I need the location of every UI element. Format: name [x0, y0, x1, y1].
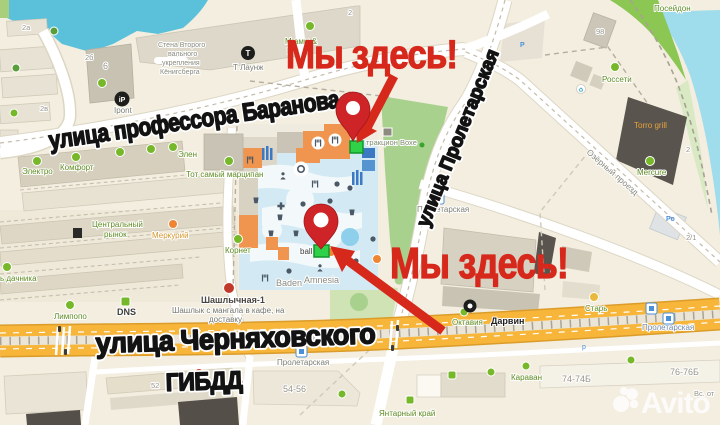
- svg-text:вального: вального: [168, 51, 197, 58]
- svg-text:T: T: [246, 49, 251, 58]
- svg-text:Корнет: Корнет: [225, 246, 251, 255]
- svg-text:Ро: Ро: [666, 216, 675, 223]
- svg-text:Mercure: Mercure: [637, 168, 667, 177]
- svg-text:Дарвин: Дарвин: [491, 316, 524, 326]
- svg-text:Baden: Baden: [276, 278, 302, 288]
- svg-text:Пролетарская: Пролетарская: [277, 358, 329, 367]
- svg-text:Центральный: Центральный: [92, 220, 143, 229]
- svg-text:76-76Б: 76-76Б: [670, 367, 699, 377]
- svg-text:iP: iP: [119, 97, 126, 104]
- svg-text:укрепления: укрепления: [162, 60, 200, 67]
- svg-text:♻: ♻: [578, 87, 583, 94]
- svg-text:DNS: DNS: [117, 307, 136, 317]
- svg-text:2а: 2а: [22, 23, 31, 32]
- svg-text:54-56: 54-56: [283, 384, 306, 394]
- svg-text:Avito: Avito: [641, 387, 711, 420]
- svg-text:Стена Второго: Стена Второго: [158, 42, 205, 49]
- svg-text:рынок: рынок: [104, 230, 127, 239]
- svg-text:Мы здесь!: Мы здесь!: [286, 32, 457, 77]
- svg-text:Комфорт: Комфорт: [60, 163, 94, 172]
- svg-text:2б: 2б: [85, 53, 93, 62]
- svg-text:Меркурий: Меркурий: [152, 231, 189, 240]
- svg-text:ГИБДД: ГИБДД: [165, 366, 243, 397]
- svg-text:Караван: Караван: [511, 373, 542, 382]
- svg-text:2: 2: [686, 145, 690, 154]
- svg-text:Посейдон: Посейдон: [654, 4, 691, 13]
- svg-text:74-74Б: 74-74Б: [562, 374, 591, 384]
- svg-text:Шашлык с мангала в кафе, на: Шашлык с мангала в кафе, на: [172, 306, 285, 315]
- svg-text:Кёнигсберга: Кёнигсберга: [160, 68, 200, 76]
- svg-text:2в: 2в: [40, 104, 48, 113]
- svg-text:ball: ball: [300, 247, 313, 256]
- svg-text:2: 2: [348, 8, 352, 17]
- svg-text:6: 6: [103, 61, 108, 71]
- svg-text:ь дачника: ь дачника: [0, 274, 37, 283]
- svg-text:2/1: 2/1: [686, 233, 696, 242]
- svg-text:Тот самый марципан: Тот самый марципан: [186, 170, 263, 179]
- svg-text:Электро: Электро: [22, 167, 53, 176]
- svg-text:P: P: [520, 42, 525, 49]
- svg-text:Октавия: Октавия: [452, 318, 483, 327]
- svg-text:Шашлычная-1: Шашлычная-1: [201, 295, 265, 305]
- svg-text:Т Лаунж: Т Лаунж: [233, 63, 264, 72]
- svg-text:Amnesia: Amnesia: [304, 275, 339, 285]
- svg-text:Torro grill: Torro grill: [634, 121, 667, 130]
- svg-text:тракцион Вохе: тракцион Вохе: [366, 138, 417, 147]
- svg-text:98: 98: [596, 27, 604, 36]
- svg-text:Лимпопо: Лимпопо: [54, 312, 87, 321]
- svg-text:Старь: Старь: [585, 304, 607, 313]
- svg-text:p: p: [582, 344, 586, 351]
- svg-text:Элен: Элен: [178, 150, 197, 159]
- svg-text:Россети: Россети: [602, 75, 632, 84]
- svg-text:Янтарный край: Янтарный край: [379, 409, 435, 418]
- svg-text:Мы здесь!: Мы здесь!: [390, 239, 568, 288]
- svg-text:52: 52: [151, 381, 159, 390]
